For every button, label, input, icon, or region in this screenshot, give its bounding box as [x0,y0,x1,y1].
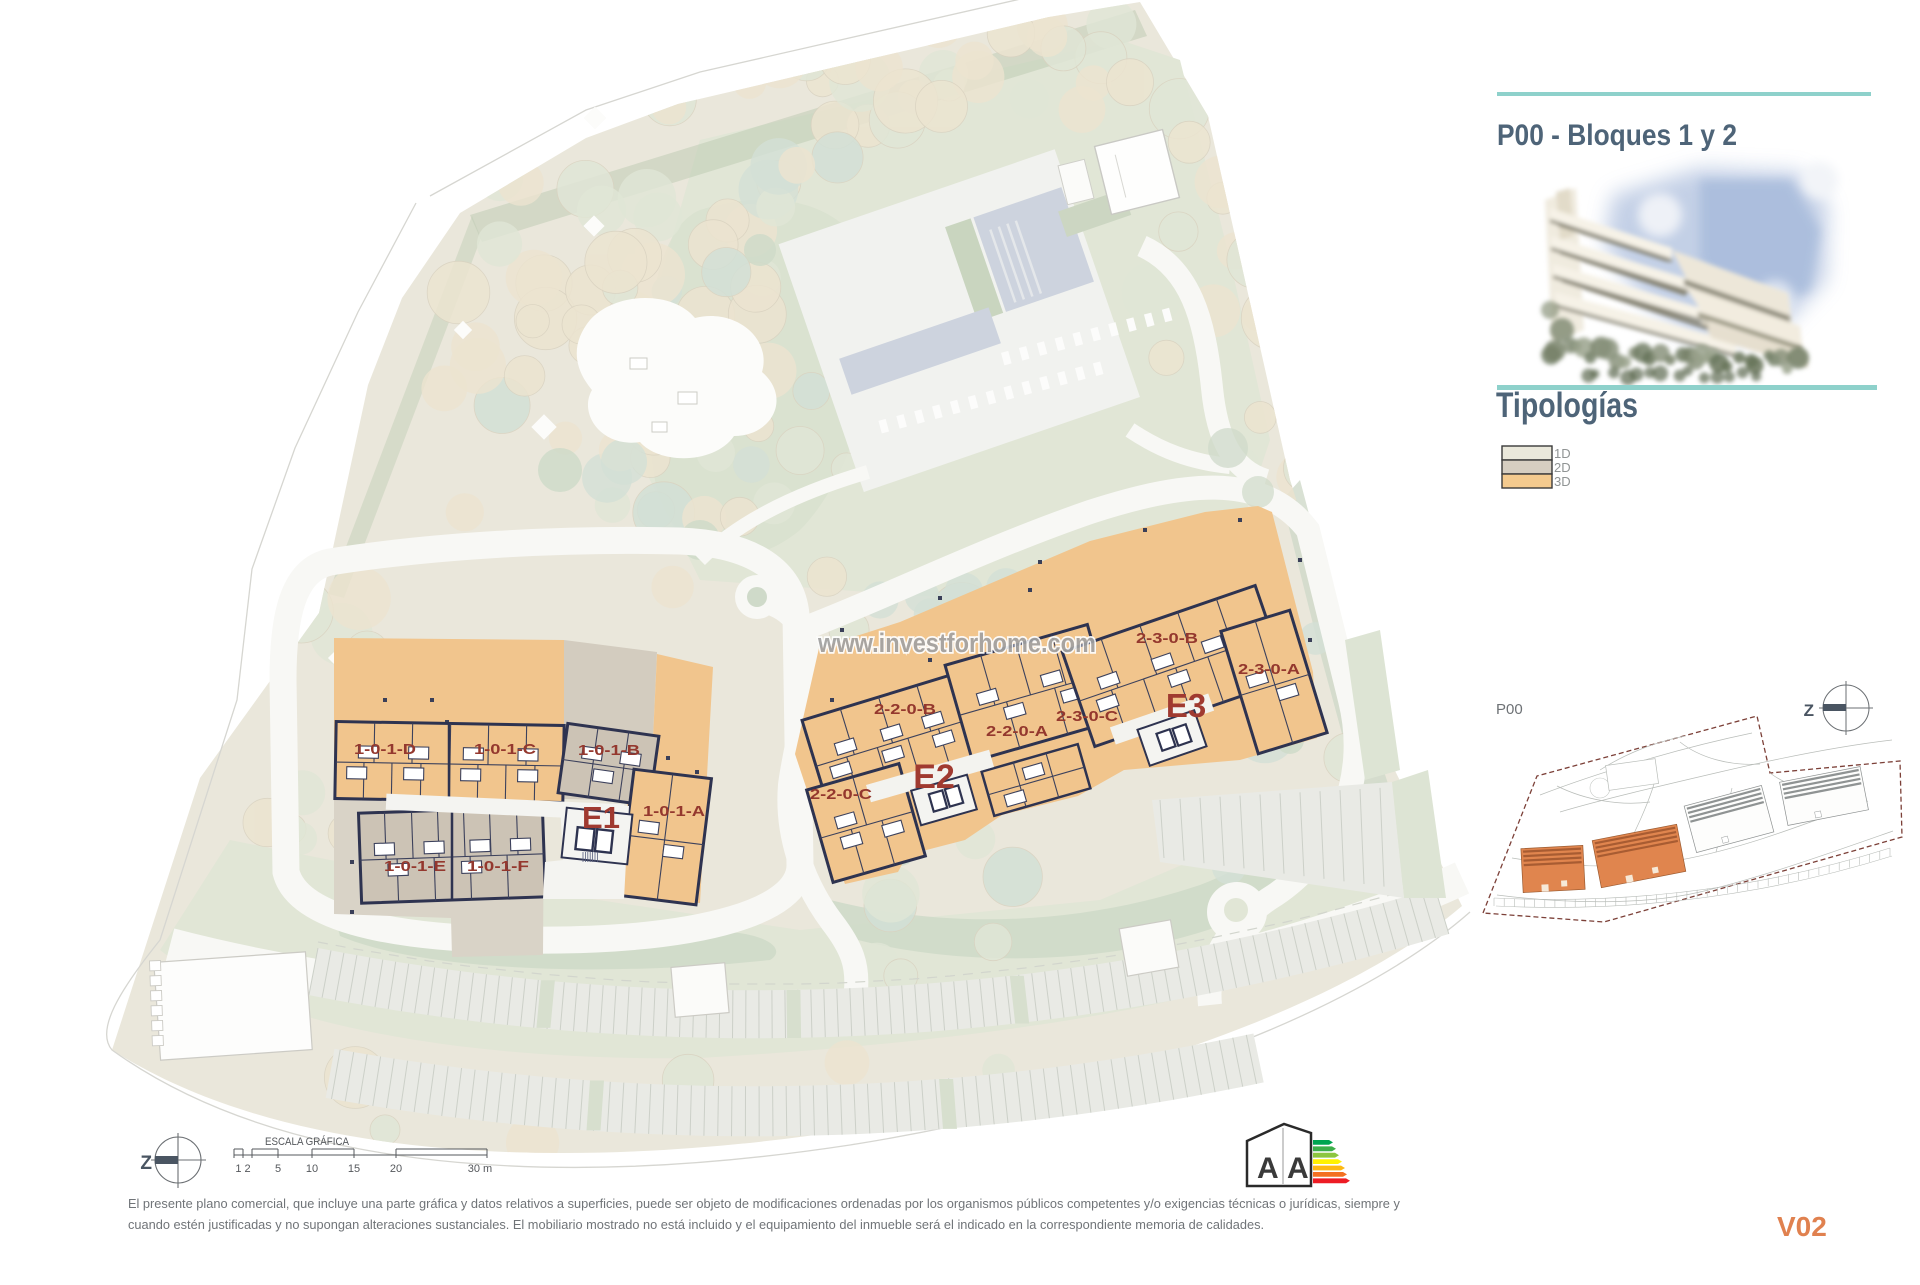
svg-text:E1: E1 [582,800,620,835]
svg-text:5: 5 [275,1163,281,1175]
svg-text:V02: V02 [1777,1211,1827,1242]
svg-text:2-3-0-C: 2-3-0-C [1056,708,1118,725]
svg-text:Z: Z [140,1153,152,1174]
svg-text:Tipologías: Tipologías [1496,386,1638,425]
svg-text:2-3-0-A: 2-3-0-A [1238,661,1300,678]
svg-text:15: 15 [348,1163,360,1175]
svg-text:1-0-1-D: 1-0-1-D [354,741,416,758]
svg-text:10: 10 [306,1163,318,1175]
svg-text:P00 - Bloques 1 y 2: P00 - Bloques 1 y 2 [1497,119,1737,152]
svg-text:1-0-1-B: 1-0-1-B [578,742,640,759]
svg-text:1D: 1D [1554,446,1571,461]
svg-text:2-2-0-A: 2-2-0-A [986,723,1048,740]
svg-text:2D: 2D [1554,460,1571,475]
svg-text:1-0-1-E: 1-0-1-E [384,858,446,875]
svg-text:A: A [1287,1152,1309,1185]
svg-text:2-2-0-C: 2-2-0-C [810,786,872,803]
svg-text:cuando estén justificadas y no: cuando estén justificadas y no supongan … [128,1217,1264,1232]
svg-text:1-0-1-F: 1-0-1-F [467,858,529,875]
svg-text:3D: 3D [1554,474,1571,489]
svg-text:1 2: 1 2 [235,1163,250,1175]
svg-text:ESCALA GRÁFICA: ESCALA GRÁFICA [265,1135,350,1148]
svg-text:El presente plano comercial, q: El presente plano comercial, que incluye… [128,1196,1400,1211]
svg-text:2-3-0-B: 2-3-0-B [1136,630,1198,647]
svg-text:E2: E2 [913,758,955,796]
svg-text:www.investforhome.com: www.investforhome.com [817,628,1096,658]
svg-text:P00: P00 [1496,701,1523,718]
svg-text:E3: E3 [1166,687,1206,724]
svg-text:20: 20 [390,1163,402,1175]
svg-text:30 m: 30 m [468,1163,492,1175]
svg-text:Z: Z [1804,701,1814,720]
svg-text:A: A [1257,1152,1279,1185]
svg-text:1-0-1-A: 1-0-1-A [643,803,705,820]
svg-text:1-0-1-C: 1-0-1-C [474,741,536,758]
svg-text:2-2-0-B: 2-2-0-B [874,701,936,718]
